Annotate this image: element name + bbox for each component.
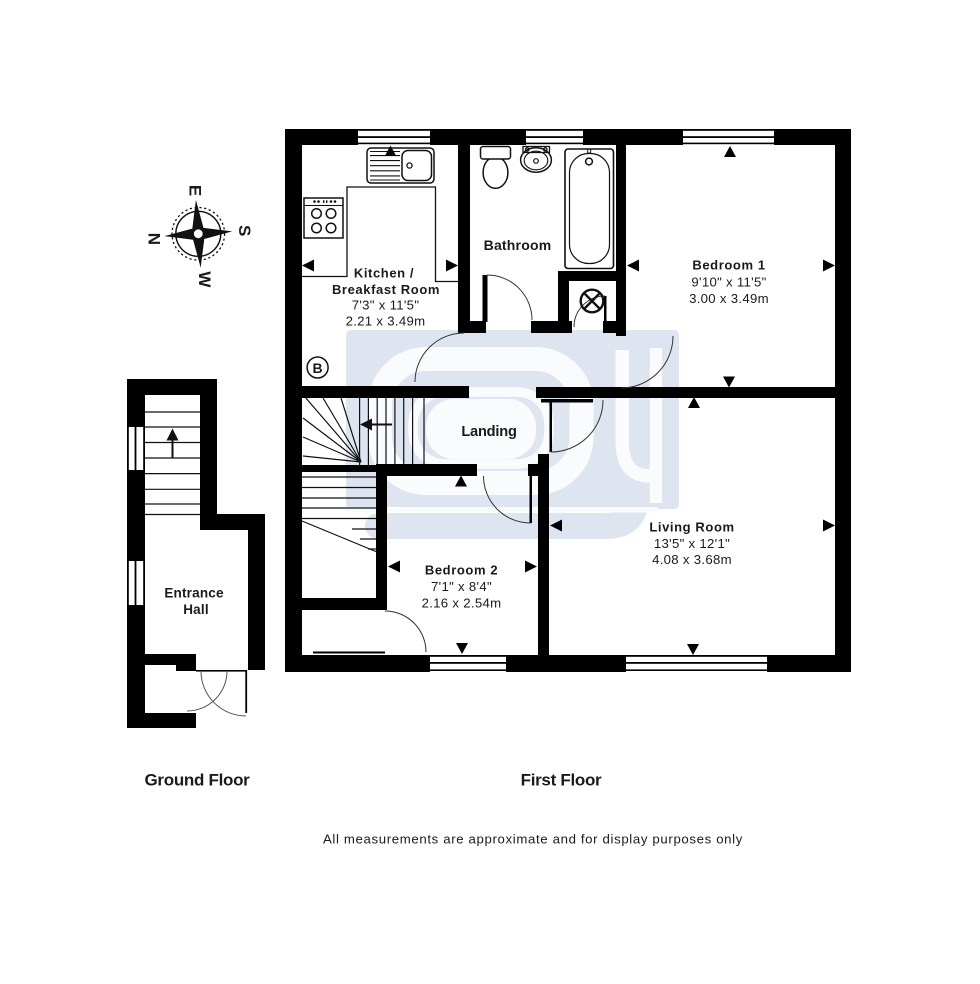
svg-text:Landing: Landing: [461, 424, 516, 440]
svg-text:Kitchen /: Kitchen /: [354, 266, 414, 281]
svg-text:Bedroom 2: Bedroom 2: [425, 563, 498, 578]
svg-text:First Floor: First Floor: [521, 771, 602, 790]
svg-text:Breakfast Room: Breakfast Room: [332, 282, 440, 297]
svg-text:Bedroom 1: Bedroom 1: [692, 258, 765, 273]
svg-text:S: S: [235, 225, 254, 236]
svg-text:13'5" x 12'1": 13'5" x 12'1": [654, 536, 730, 551]
svg-text:7'3" x 11'5": 7'3" x 11'5": [352, 298, 420, 313]
svg-text:Entrance: Entrance: [164, 586, 224, 601]
svg-text:B: B: [313, 360, 323, 376]
svg-text:9'10" x 11'5": 9'10" x 11'5": [691, 275, 766, 290]
svg-text:W: W: [195, 271, 214, 288]
svg-text:All measurements are approxima: All measurements are approximate and for…: [323, 832, 743, 847]
svg-text:4.08 x 3.68m: 4.08 x 3.68m: [652, 552, 732, 567]
svg-text:Bathroom: Bathroom: [484, 237, 552, 253]
svg-text:3.00 x 3.49m: 3.00 x 3.49m: [689, 291, 769, 306]
svg-text:2.16 x 2.54m: 2.16 x 2.54m: [422, 596, 502, 611]
svg-text:7'1" x 8'4": 7'1" x 8'4": [431, 579, 492, 594]
svg-text:Hall: Hall: [183, 602, 209, 617]
svg-text:Ground Floor: Ground Floor: [145, 771, 251, 790]
svg-text:E: E: [185, 185, 204, 196]
svg-text:2.21 x 3.49m: 2.21 x 3.49m: [346, 314, 426, 329]
svg-text:Living Room: Living Room: [649, 520, 734, 535]
svg-text:N: N: [145, 233, 164, 245]
